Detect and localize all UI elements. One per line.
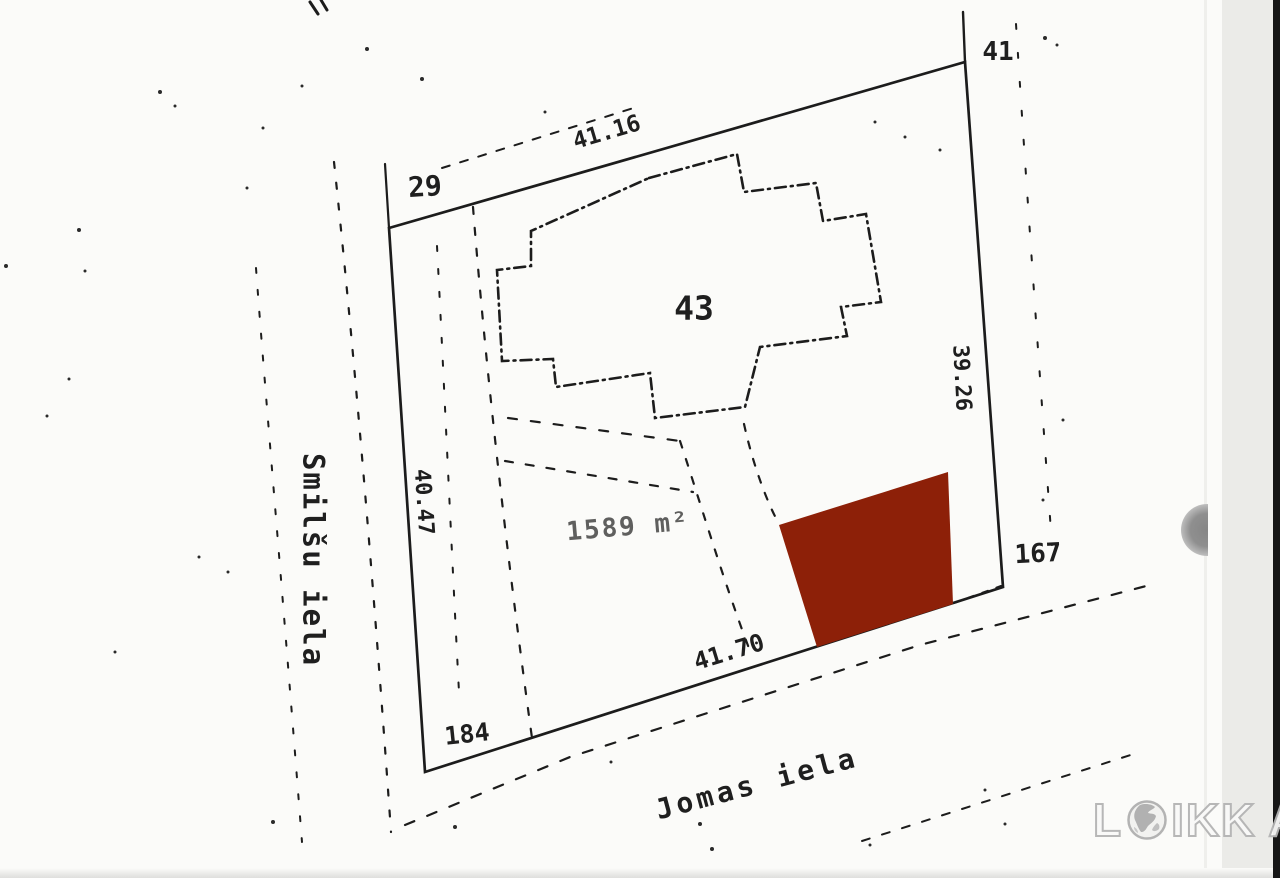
boundary-extension-top-right <box>963 12 965 62</box>
watermark-letter-a: A <box>1268 797 1280 843</box>
scan-speckles <box>4 36 1065 874</box>
highlight-polygon <box>779 472 953 647</box>
building-number: 43 <box>674 292 714 325</box>
dimension-right: 39.26 <box>948 344 973 411</box>
dimension-left: 40.47 <box>410 468 437 536</box>
paper-edge-bottom-shadow <box>0 868 1273 878</box>
paper-edge-gray-strip <box>1222 0 1273 878</box>
inner-dashed-line-1 <box>437 246 459 692</box>
area-dashed-lower <box>505 461 693 492</box>
inner-dashed-line-2 <box>473 207 532 738</box>
scan-mark-top <box>310 0 327 14</box>
east-parallel-dashed <box>1016 24 1052 545</box>
street-name-west: Smilšu iela <box>299 453 328 667</box>
scanned-site-plan: 29 41 167 184 41.16 39.26 40.47 41.70 43… <box>0 0 1280 878</box>
globe-icon <box>1126 799 1168 841</box>
corner-marker-bottom-right: 167 <box>1014 540 1062 568</box>
corner-marker-bottom-left: 184 <box>443 719 491 749</box>
paper-edge-faint-line <box>1204 0 1207 878</box>
area-dashed-upper <box>508 418 680 441</box>
street-west-edge-outer-dashed <box>256 268 302 842</box>
watermark-letter-l: L <box>1093 797 1123 843</box>
street-west-edge-inner-dashed <box>334 162 391 832</box>
watermark-letters-ikk: IKK <box>1171 797 1256 843</box>
building-to-highlight-dashed <box>744 424 778 522</box>
building-outline <box>497 154 881 418</box>
area-dashed-curve <box>680 441 750 651</box>
paper-edge-black-border <box>1273 0 1280 878</box>
watermark-logo: L IKK A <box>1093 790 1253 850</box>
boundary-extension-top-left <box>385 164 389 228</box>
corner-marker-top-right: 41 <box>982 39 1013 65</box>
corner-marker-top-left: 29 <box>407 172 443 202</box>
